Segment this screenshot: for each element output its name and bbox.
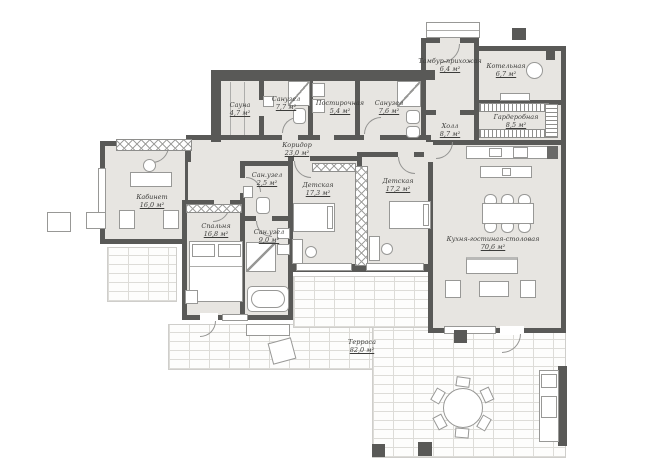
doormat-icon	[246, 324, 290, 336]
patio-paving-left	[107, 247, 177, 302]
window-icon-office-top	[116, 139, 192, 151]
room-area: 9,0 м²	[224, 236, 314, 244]
porch-steps-icon	[426, 22, 480, 38]
room-name: Терраса	[348, 338, 376, 346]
fridge-icon	[547, 146, 558, 159]
room-name: Кабинет	[136, 193, 167, 201]
desk-icon	[369, 236, 380, 261]
room-area: 82,0 м²	[317, 346, 407, 354]
room-label-terrace: Терраса 82,0 м²	[317, 338, 407, 355]
room-area: 6,7 м²	[461, 70, 551, 78]
bathtub-inner	[251, 290, 285, 308]
pillow-icon	[423, 204, 429, 226]
room-area: 8,7 м²	[405, 130, 495, 138]
chair-icon	[484, 194, 497, 204]
room-label-corridor: Коридор 23,0 м²	[252, 141, 342, 158]
room-name: Холл	[442, 122, 459, 130]
floor-plan: Сауна 4,7 м² Санузел 7,7 м² Постирочная …	[0, 0, 668, 472]
office-chair-icon	[305, 246, 317, 258]
terrace-wall-strip	[558, 366, 567, 446]
room-label-hall: Холл 8,7 м²	[405, 122, 495, 139]
room-name: Детская	[383, 177, 414, 185]
room-label-office: Кабинет 16,0 м²	[107, 193, 197, 210]
armchair-icon	[520, 280, 536, 298]
room-name: Детская	[303, 181, 334, 189]
room-area: 17,2 м²	[353, 185, 443, 193]
chair-icon	[501, 194, 514, 204]
room-name: Гардеробная	[494, 113, 539, 121]
room-area: 16,0 м²	[107, 201, 197, 209]
grill-icon	[541, 396, 557, 418]
room-label-boiler: Котельная 6,7 м²	[461, 62, 551, 79]
terrace-column	[454, 330, 467, 343]
room-name: Санузел	[375, 99, 403, 107]
room-name: Кухня-гостиная-столовая	[447, 235, 540, 243]
room-label-bathroom76: Санузел 7,6 м²	[344, 99, 434, 116]
toilet-icon	[256, 197, 270, 214]
terrace-column	[418, 442, 432, 456]
room-area: 70,6 м²	[433, 243, 553, 251]
shower-icon	[246, 242, 276, 272]
kitchen-counter-icon	[466, 146, 558, 159]
boiler-shelf-icon	[500, 93, 530, 101]
armchair-icon	[445, 280, 461, 298]
terrace-paving-center	[293, 276, 432, 328]
window-icon-kids1-bottom	[296, 263, 352, 271]
room-label-kidsroom2: Детская 17,2 м²	[353, 177, 443, 194]
terrace-column	[372, 444, 385, 457]
room-name: Котельная	[486, 62, 525, 70]
sink-icon	[277, 244, 290, 255]
room-area: 7,6 м²	[344, 107, 434, 115]
chair-icon	[455, 376, 470, 388]
wardrobe-icon-dressing-top	[479, 103, 549, 112]
door-opening-vestibule-hall	[436, 108, 460, 116]
bathtub-icon	[247, 286, 289, 312]
lounger-icon	[47, 212, 71, 232]
room-name: Сан.узел	[254, 228, 285, 236]
door-opening-hall-living	[434, 161, 472, 169]
pillow-icon	[327, 206, 333, 229]
boiler-equipment-icon	[546, 51, 555, 60]
door-opening-bathroom77	[282, 133, 298, 141]
kitchen-sink-icon	[489, 148, 502, 157]
wall-vent-stub	[512, 28, 526, 40]
desk-icon	[130, 172, 172, 187]
blanket-line	[190, 266, 242, 267]
window-icon-kids2-bottom	[366, 263, 424, 271]
outdoor-appliance-icon	[541, 374, 557, 388]
wardrobe-icon-kidsroom1	[312, 163, 356, 172]
room-name: Коридор	[282, 141, 312, 149]
door-opening-bathroom76	[364, 133, 380, 141]
chair-icon	[455, 427, 470, 438]
office-chair-icon	[381, 243, 393, 255]
room-name: Сан.узел	[252, 171, 283, 179]
sofa-icon	[466, 257, 518, 274]
cooktop-icon	[513, 147, 528, 158]
lounger-icon	[86, 212, 106, 229]
door-opening-laundry	[320, 133, 334, 141]
pillow-icon	[218, 244, 241, 257]
pillow-icon	[192, 244, 215, 257]
island-sink-icon	[502, 168, 511, 176]
room-label-living: Кухня-гостиная-столовая 70,6 м²	[433, 235, 553, 252]
chair-icon	[518, 194, 531, 204]
office-chair-icon	[143, 159, 156, 172]
window-icon-bedroom-bottom	[222, 314, 248, 321]
window-icon-living-bottom	[444, 326, 496, 334]
armchair-icon	[185, 290, 198, 304]
room-area: 17,3 м²	[273, 189, 363, 197]
guest-chair-icon	[119, 210, 135, 229]
door-opening-corridor-hall	[424, 142, 433, 162]
room-area: 23,0 м²	[252, 149, 342, 157]
dining-table-icon	[482, 203, 534, 224]
room-label-bathroom90: Сан.узел 9,0 м²	[224, 228, 314, 245]
wall-top-utility	[211, 70, 435, 80]
coffee-table-icon	[479, 281, 509, 297]
porch-step-line	[427, 30, 479, 31]
room-label-kidsroom1: Детская 17,3 м²	[273, 181, 363, 198]
round-table-icon	[443, 388, 483, 428]
